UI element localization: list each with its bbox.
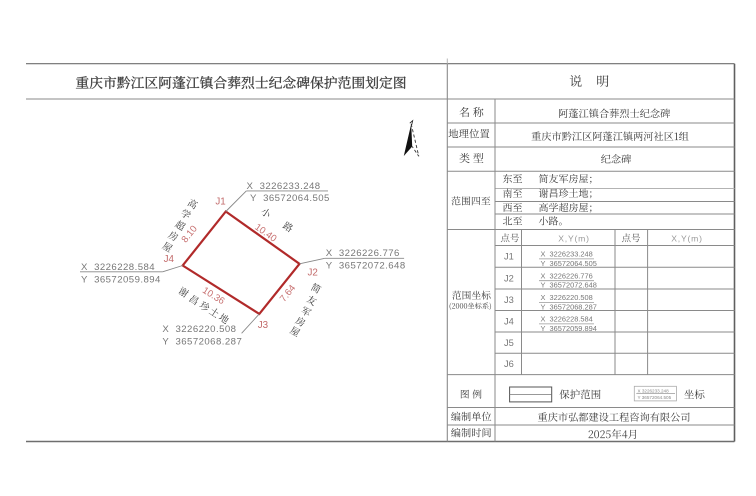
svg-text:X 3226233.248: X 3226233.248 [638, 388, 670, 393]
svg-text:X 3226220.508: X 3226220.508 [162, 324, 236, 335]
svg-text:J3: J3 [504, 295, 514, 305]
svg-text:J5: J5 [504, 338, 514, 348]
svg-text:J6: J6 [504, 359, 514, 369]
svg-text:J2: J2 [308, 268, 318, 279]
svg-text:J4: J4 [504, 317, 514, 327]
svg-text:X,Y(m): X,Y(m) [558, 233, 590, 243]
svg-text:8.10: 8.10 [180, 224, 200, 245]
svg-text:X 3226226.776: X 3226226.776 [541, 272, 593, 281]
svg-text:Y 36572064.505: Y 36572064.505 [541, 259, 597, 268]
svg-text:10.36: 10.36 [200, 285, 226, 307]
svg-text:X 3226228.584: X 3226228.584 [81, 262, 155, 273]
svg-text:Y 36572059.894: Y 36572059.894 [541, 324, 597, 333]
svg-text:X 3226220.508: X 3226220.508 [541, 293, 593, 302]
svg-text:Y 36572064.505: Y 36572064.505 [250, 193, 330, 204]
svg-text:10.40: 10.40 [252, 222, 278, 245]
svg-text:Y 36572072.648: Y 36572072.648 [326, 260, 406, 271]
svg-text:J2: J2 [504, 273, 514, 283]
svg-text:X,Y(m): X,Y(m) [671, 233, 703, 243]
svg-text:Y 36572068.287: Y 36572068.287 [162, 337, 242, 348]
svg-text:J1: J1 [215, 196, 225, 207]
svg-text:X 3226228.584: X 3226228.584 [541, 315, 593, 324]
svg-text:Y 36572064.505: Y 36572064.505 [638, 395, 672, 400]
svg-text:Y 36572068.287: Y 36572068.287 [541, 302, 597, 311]
svg-text:X 3226233.248: X 3226233.248 [541, 250, 593, 259]
svg-text:Y 36572072.648: Y 36572072.648 [541, 281, 597, 290]
svg-text:J1: J1 [504, 252, 514, 262]
svg-text:J4: J4 [164, 254, 175, 265]
svg-text:X 3226233.248: X 3226233.248 [247, 181, 321, 192]
svg-text:Y 36572059.894: Y 36572059.894 [81, 275, 161, 286]
svg-text:J3: J3 [258, 320, 269, 331]
svg-text:X 3226226.776: X 3226226.776 [326, 248, 400, 259]
